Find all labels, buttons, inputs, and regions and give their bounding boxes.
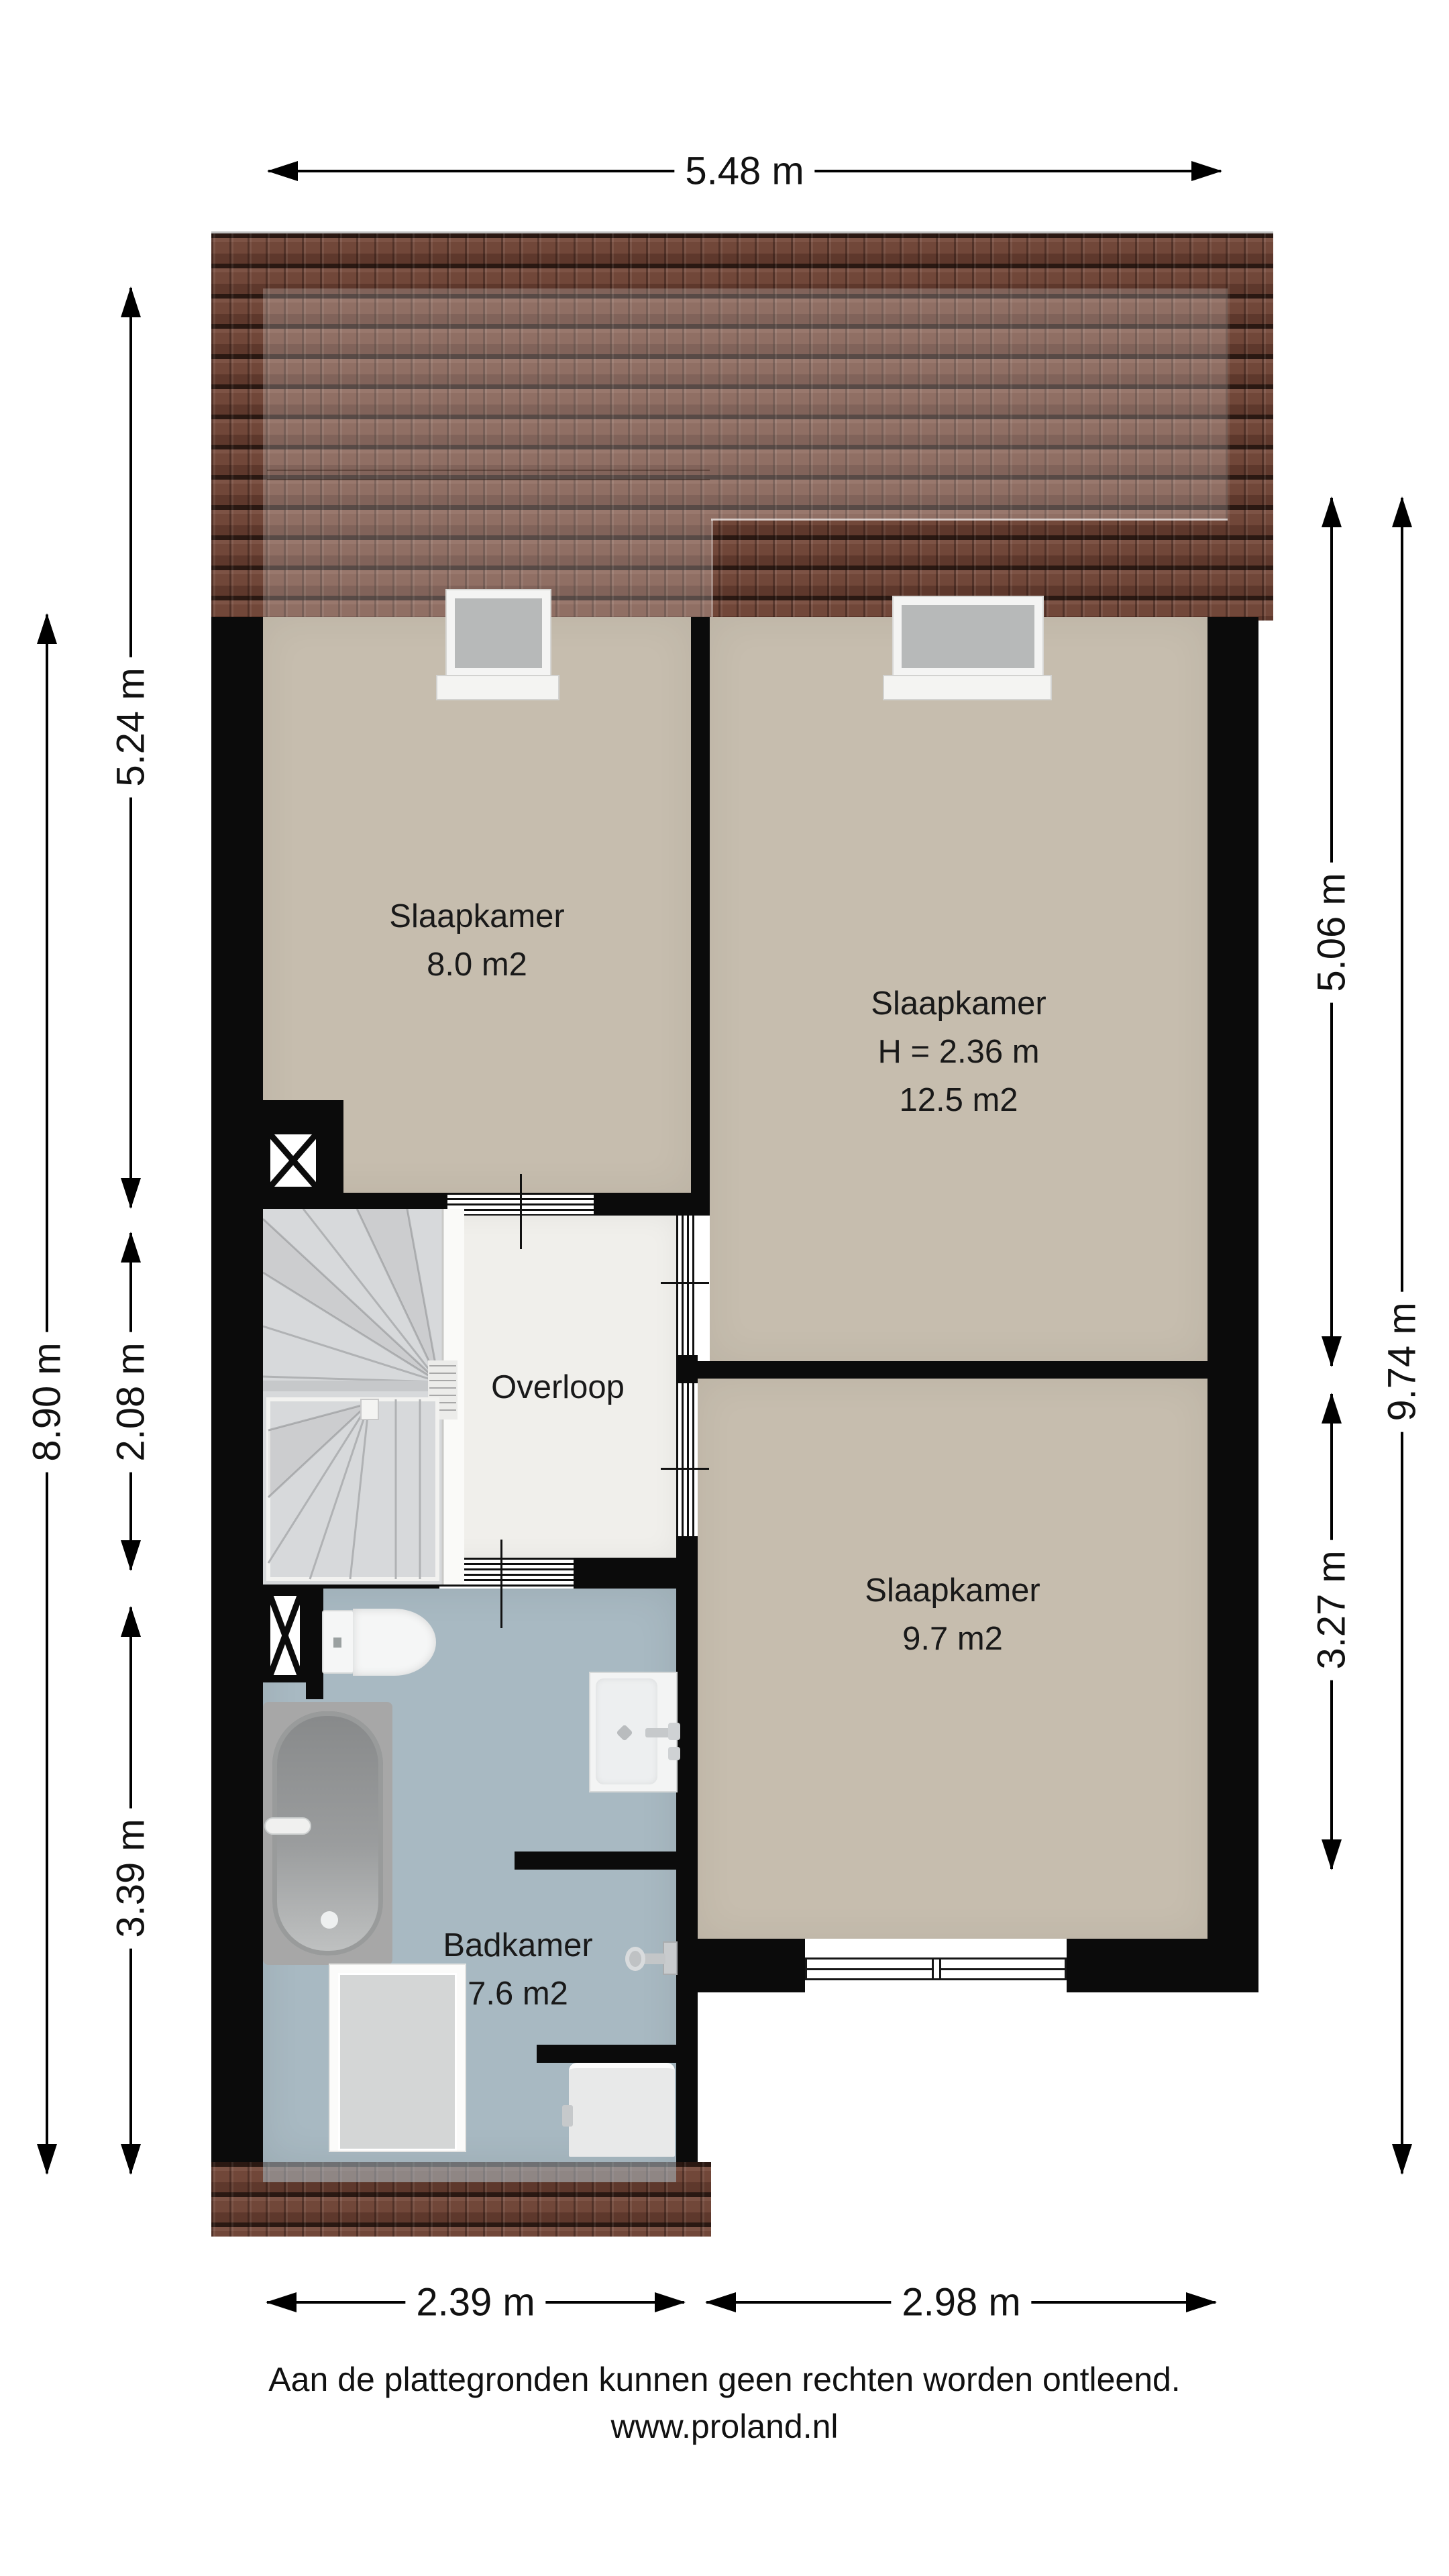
- wall-stub-lower: [537, 2045, 676, 2063]
- room-name: Slaapkamer: [263, 892, 691, 941]
- door-bedroom-small-leaf: [520, 1174, 522, 1249]
- wall-back-bottom-right: [1067, 1939, 1258, 1992]
- arrow-right-icon: [1191, 161, 1222, 181]
- dim-right-total: 9.74 m: [1401, 498, 1403, 2173]
- bedroom-small-label: Slaapkamer 8.0 m2: [263, 892, 691, 989]
- room-name: Slaapkamer: [698, 1566, 1207, 1615]
- dim-left-lower: 3.39 m: [129, 1607, 132, 2173]
- room-name: Badkamer: [263, 1921, 773, 1970]
- arrow-left-icon: [266, 2292, 297, 2312]
- washbasin-unit-tap: [562, 2105, 573, 2127]
- room-name: Slaapkamer: [710, 979, 1207, 1028]
- toilet-flush-button: [333, 1638, 341, 1648]
- arrow-up-icon: [1322, 496, 1342, 527]
- footer: Aan de plattegronden kunnen geen rechten…: [0, 2356, 1449, 2450]
- dim-top-width: 5.48 m: [268, 170, 1221, 172]
- wall-stub-upper: [515, 1851, 676, 1870]
- wall-left-outer: [211, 617, 263, 2162]
- dim-left-total-label: 8.90 m: [22, 1332, 72, 1472]
- washbasin-unit: [569, 2063, 675, 2157]
- window-back-glazing: [805, 1957, 1067, 1980]
- dim-left-upper: 5.24 m: [129, 288, 132, 1207]
- dim-left-middle-label: 2.08 m: [106, 1332, 156, 1472]
- arrow-down-icon: [121, 2144, 141, 2175]
- dim-right-lower-label: 3.27 m: [1307, 1540, 1357, 1680]
- arrow-up-icon: [121, 286, 141, 317]
- door-bedroom-large-leaf: [661, 1282, 709, 1284]
- room-ceiling-height: H = 2.36 m: [710, 1028, 1207, 1076]
- landing-label: Overloop: [439, 1363, 676, 1411]
- dim-bottom-right-label: 2.98 m: [891, 2277, 1031, 2328]
- wall-between-right-bedrooms: [698, 1361, 1207, 1379]
- sink-tap-knob-2: [668, 1747, 680, 1760]
- door-bathroom-leaf: [500, 1540, 502, 1628]
- door-bedroom-back-leaf: [661, 1468, 709, 1470]
- dim-right-lower: 3.27 m: [1330, 1394, 1333, 1869]
- dim-right-upper: 5.06 m: [1330, 498, 1333, 1366]
- flue-box-top: [263, 1127, 323, 1194]
- sink-tap-knob: [668, 1723, 680, 1740]
- dim-left-upper-label: 5.24 m: [106, 657, 156, 797]
- roof-bottom-overlay: [263, 2162, 676, 2182]
- arrow-up-icon: [121, 1232, 141, 1263]
- window-back-divider: [932, 1960, 941, 1978]
- wall-landing-bathroom-right: [574, 1558, 676, 1589]
- dim-bottom-right: 2.98 m: [706, 2301, 1216, 2304]
- arrow-down-icon: [1392, 2144, 1412, 2175]
- room-area: 7.6 m2: [263, 1970, 773, 2018]
- bedroom-back-label: Slaapkamer 9.7 m2: [698, 1566, 1207, 1663]
- skylight-left-pane: [455, 598, 542, 668]
- flue-x-icon: [270, 1596, 300, 1675]
- wall-bathroom-right: [676, 1589, 698, 2162]
- arrow-down-icon: [1322, 1839, 1342, 1870]
- arrow-down-icon: [121, 1178, 141, 1209]
- floor-plan: Slaapkamer 8.0 m2 Slaapkamer H = 2.36 m …: [0, 0, 1449, 2576]
- wall-between-top-bedrooms: [691, 617, 710, 1193]
- wall-jog: [263, 1100, 343, 1128]
- dim-right-upper-label: 5.06 m: [1307, 862, 1357, 1002]
- toilet: [322, 1609, 436, 1676]
- room-area: 9.7 m2: [698, 1615, 1207, 1663]
- bedroom-large-label: Slaapkamer H = 2.36 m 12.5 m2: [710, 979, 1207, 1124]
- skylight-right-pane: [902, 605, 1034, 668]
- roof-ridge-line: [267, 470, 710, 471]
- arrow-down-icon: [37, 2144, 57, 2175]
- wall-flue-side-bottom: [306, 1589, 323, 1699]
- disclaimer-text: Aan de plattegronden kunnen geen rechten…: [0, 2356, 1449, 2403]
- arrow-left-icon: [705, 2292, 736, 2312]
- dim-bottom-left-label: 2.39 m: [405, 2277, 545, 2328]
- wall-landing-right-block: [676, 1355, 698, 1383]
- arrow-right-icon: [1186, 2292, 1217, 2312]
- sink: [589, 1672, 678, 1792]
- dim-top-width-label: 5.48 m: [674, 146, 814, 197]
- wall-jog-side: [323, 1127, 343, 1194]
- sink-faucet: [645, 1728, 671, 1737]
- bathroom-label: Badkamer 7.6 m2: [263, 1921, 773, 2018]
- roof-ridge-line: [267, 479, 710, 480]
- roof-step-line: [711, 519, 1228, 521]
- room-area: 12.5 m2: [710, 1076, 1207, 1124]
- website-link: www.proland.nl: [0, 2403, 1449, 2450]
- arrow-left-icon: [267, 161, 298, 181]
- dim-left-total: 8.90 m: [46, 614, 48, 2173]
- arrow-down-icon: [1322, 1336, 1342, 1367]
- stair-newel: [361, 1399, 378, 1419]
- dim-right-total-label: 9.74 m: [1377, 1291, 1428, 1432]
- arrow-up-icon: [121, 1606, 141, 1637]
- room-area: 8.0 m2: [263, 941, 691, 989]
- arrow-right-icon: [655, 2292, 686, 2312]
- skylight-right-sill: [883, 675, 1052, 700]
- arrow-down-icon: [121, 1540, 141, 1571]
- window-back: [805, 1939, 1067, 1992]
- skylight-left: [445, 589, 551, 678]
- wall-landing-right-lower: [676, 1536, 698, 1589]
- wall-junction-nub: [676, 1193, 710, 1216]
- staircase: [263, 1209, 464, 1585]
- skylight-left-sill: [436, 675, 559, 700]
- door-bedroom-large: [676, 1216, 698, 1355]
- arrow-up-icon: [37, 613, 57, 644]
- arrow-up-icon: [1322, 1393, 1342, 1424]
- roof-attic-outline-upper: [263, 288, 1228, 520]
- wall-right-outer: [1207, 617, 1258, 1939]
- dim-left-lower-label: 3.39 m: [106, 1808, 156, 1948]
- bathtub-faucet: [264, 1817, 311, 1835]
- dim-bottom-left: 2.39 m: [267, 2301, 684, 2304]
- roof-step-line-vertical: [711, 520, 713, 619]
- skylight-right: [892, 596, 1044, 678]
- toilet-bowl: [353, 1609, 436, 1676]
- flue-box-bottom: [263, 1589, 307, 1682]
- arrow-up-icon: [1392, 496, 1412, 527]
- room-name: Overloop: [439, 1363, 676, 1411]
- dim-left-middle: 2.08 m: [129, 1233, 132, 1570]
- door-bedroom-back: [676, 1383, 698, 1536]
- flue-x-icon: [270, 1134, 316, 1187]
